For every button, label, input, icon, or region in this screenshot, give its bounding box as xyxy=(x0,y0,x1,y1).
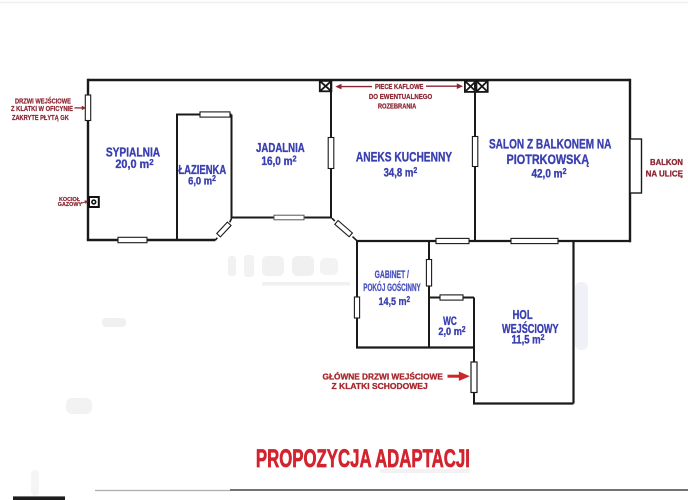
svg-text:20,0 m2: 20,0 m2 xyxy=(115,157,154,171)
svg-text:42,0 m2: 42,0 m2 xyxy=(532,166,567,180)
svg-text:POKÓJ GOŚCINNY: POKÓJ GOŚCINNY xyxy=(363,281,421,294)
svg-text:Z KLATKI SCHODOWEJ: Z KLATKI SCHODOWEJ xyxy=(332,381,428,391)
svg-text:PROPOZYCJA ADAPTACJI: PROPOZYCJA ADAPTACJI xyxy=(256,445,470,473)
svg-text:ZAKRYTE PŁYTĄ GK: ZAKRYTE PŁYTĄ GK xyxy=(12,113,69,122)
svg-text:ANEKS KUCHENNY: ANEKS KUCHENNY xyxy=(356,149,453,165)
svg-text:14,5 m2: 14,5 m2 xyxy=(378,295,410,308)
svg-text:16,0 m2: 16,0 m2 xyxy=(261,153,296,167)
svg-text:JADALNIA: JADALNIA xyxy=(256,140,305,155)
svg-text:NA ULICĘ: NA ULICĘ xyxy=(646,168,684,178)
svg-text:PIECE KAFLOWE: PIECE KAFLOWE xyxy=(375,82,424,91)
svg-text:PIOTRKOWSKĄ: PIOTRKOWSKĄ xyxy=(507,152,590,167)
svg-text:GAZOWY: GAZOWY xyxy=(58,202,82,208)
svg-text:BALKON: BALKON xyxy=(650,157,683,167)
svg-text:SALON Z BALKONEM NA: SALON Z BALKONEM NA xyxy=(489,137,612,152)
svg-text:Z KLATKI W OFICYNIE: Z KLATKI W OFICYNIE xyxy=(11,104,73,113)
svg-text:HOL: HOL xyxy=(513,308,533,322)
svg-text:34,8 m2: 34,8 m2 xyxy=(384,165,418,179)
svg-text:11,5 m2: 11,5 m2 xyxy=(512,332,545,346)
svg-text:DO EWENTUALNEGO: DO EWENTUALNEGO xyxy=(369,92,433,101)
svg-text:ROZEBRANIA: ROZEBRANIA xyxy=(378,102,417,111)
svg-text:GABINET /: GABINET / xyxy=(375,269,409,281)
svg-text:GŁÓWNE DRZWI WEJŚCIOWE: GŁÓWNE DRZWI WEJŚCIOWE xyxy=(323,370,444,381)
